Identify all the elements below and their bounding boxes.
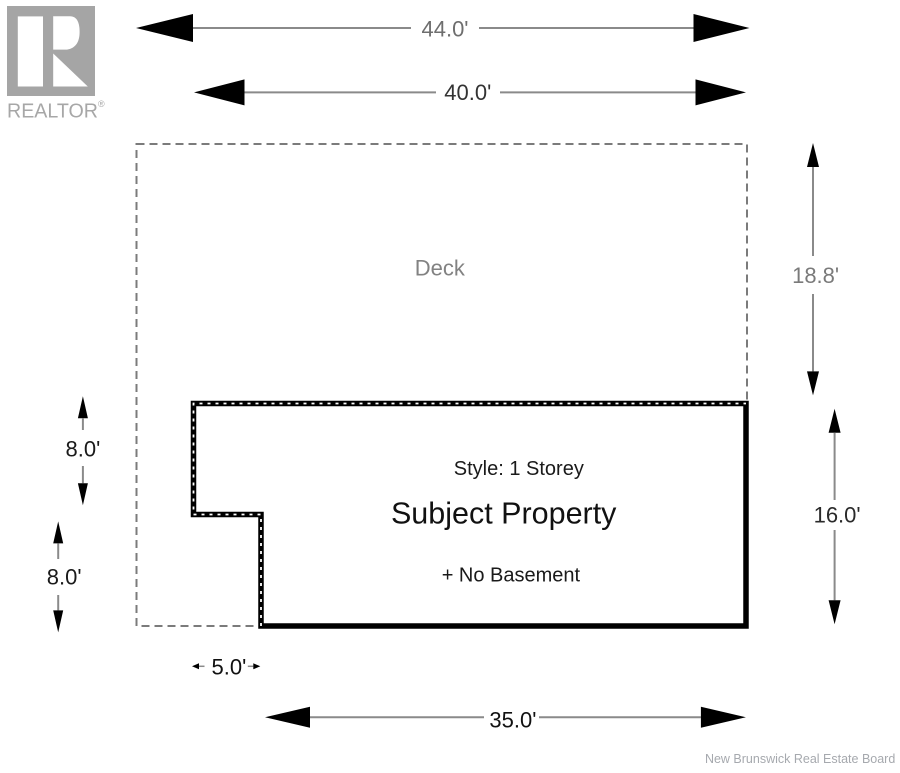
svg-text:16.0': 16.0' bbox=[814, 503, 861, 528]
svg-text:8.0': 8.0' bbox=[47, 565, 82, 590]
svg-text:+ No Basement: + No Basement bbox=[442, 565, 581, 587]
svg-text:Subject Property: Subject Property bbox=[391, 496, 617, 530]
svg-text:18.8': 18.8' bbox=[792, 263, 839, 288]
svg-text:8.0': 8.0' bbox=[66, 436, 101, 461]
svg-text:35.0': 35.0' bbox=[489, 708, 536, 733]
svg-text:New Brunswick Real Estate Boar: New Brunswick Real Estate Board bbox=[705, 752, 895, 766]
svg-text:40.0': 40.0' bbox=[444, 80, 491, 105]
svg-text:REALTOR: REALTOR bbox=[7, 101, 98, 123]
svg-text:Deck: Deck bbox=[415, 256, 466, 281]
svg-text:Style: 1 Storey: Style: 1 Storey bbox=[454, 458, 584, 480]
svg-text:44.0': 44.0' bbox=[421, 17, 468, 42]
svg-text:®: ® bbox=[98, 99, 105, 109]
svg-text:5.0': 5.0' bbox=[212, 654, 247, 679]
